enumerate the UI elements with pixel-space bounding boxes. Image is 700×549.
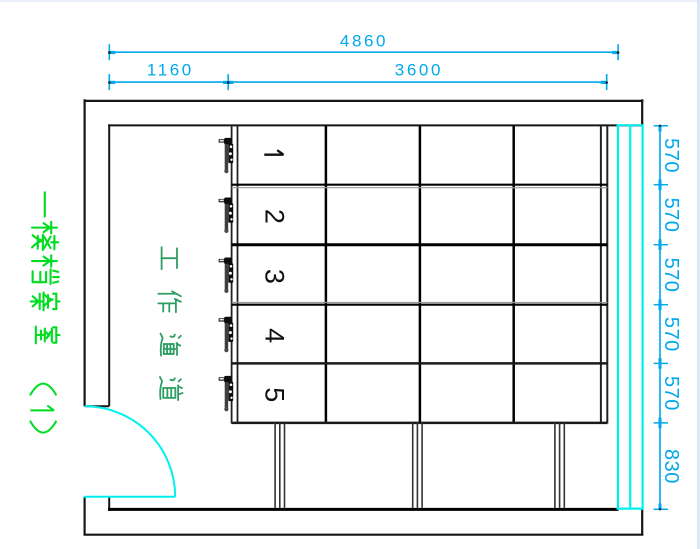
svg-text:570: 570 [660, 138, 682, 173]
svg-text:570: 570 [660, 258, 682, 293]
svg-text:5: 5 [260, 387, 290, 402]
svg-text:1160: 1160 [147, 60, 194, 79]
svg-text:830: 830 [660, 449, 682, 484]
svg-text:570: 570 [660, 317, 682, 352]
svg-text:2: 2 [260, 209, 290, 224]
svg-text:570: 570 [660, 198, 682, 233]
svg-text:570: 570 [660, 376, 682, 411]
svg-text:3: 3 [260, 269, 290, 284]
svg-text:4: 4 [260, 328, 290, 343]
svg-text:4860: 4860 [340, 32, 388, 51]
svg-text:3600: 3600 [395, 60, 443, 79]
